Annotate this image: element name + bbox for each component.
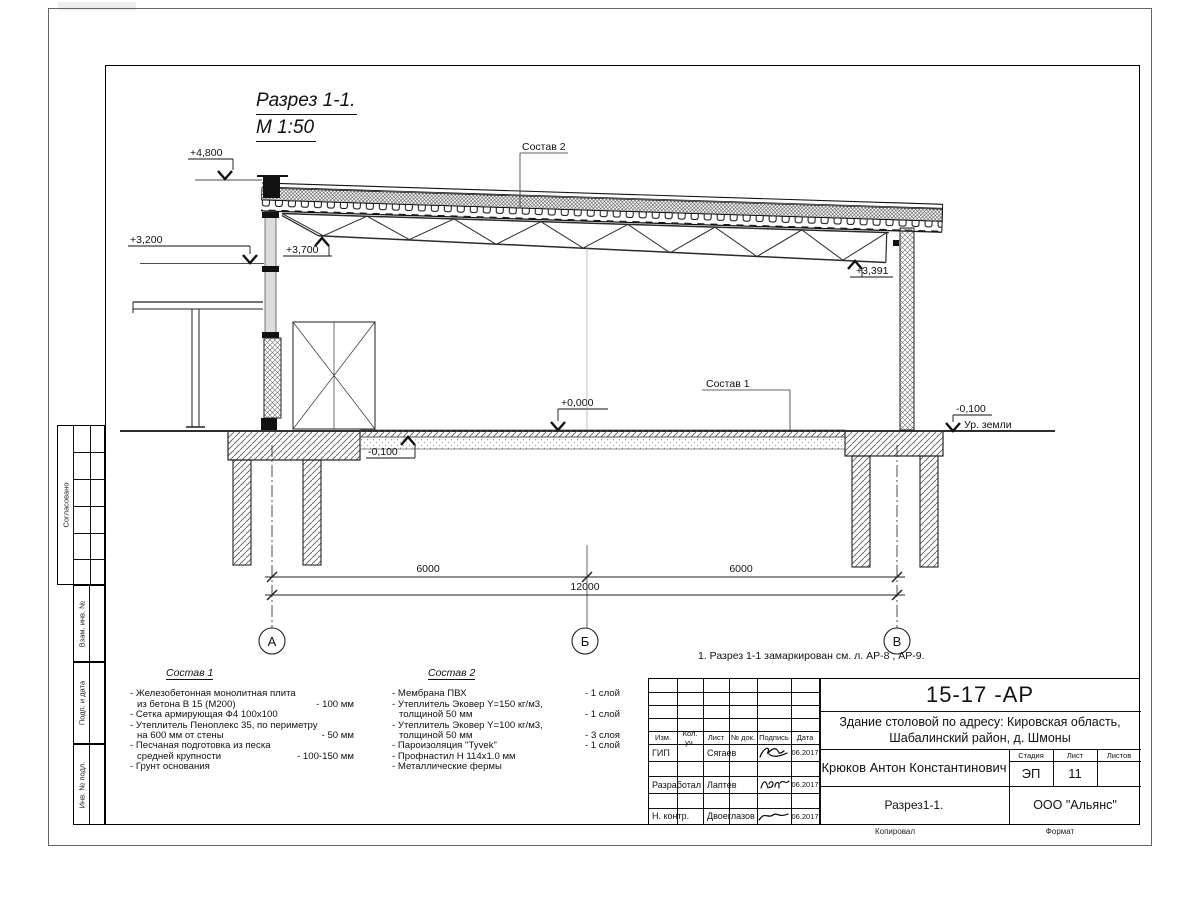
roof-assembly <box>260 181 945 264</box>
stamp-inv-podl: Инв. № подл. <box>73 744 105 825</box>
col-list: Лист <box>703 731 729 744</box>
company-name: ООО "Альянс" <box>1009 786 1141 824</box>
project-title: Здание столовой по адресу: Кировская обл… <box>819 711 1141 749</box>
dim-6000-right: 6000 <box>729 563 753 575</box>
view-title-text: Разрез 1-1. <box>256 88 357 115</box>
leader-sostav1 <box>702 390 790 431</box>
sostav1-title: Состав 1 <box>166 668 213 680</box>
floor-slab <box>360 430 845 449</box>
row-gip-role: ГИП <box>649 744 703 761</box>
elevation-3700-label: +3,700 <box>286 244 319 256</box>
stage-label: Стадия <box>1009 749 1053 761</box>
dim-12000: 12000 <box>570 581 599 593</box>
col-data: Дата <box>791 731 819 744</box>
drawing-note: 1. Разрез 1-1 замаркирован см. л. АР-8 ,… <box>698 650 924 662</box>
stamp-soglasovano-label: Согласовано <box>61 482 70 527</box>
kopiroval-label: Копировал <box>820 827 970 836</box>
spec-list-sostav2: Состав 2 - Мембрана ПВХ- 1 слой - Утепли… <box>392 668 620 773</box>
axis-label-a: А <box>268 634 277 649</box>
stamp-inv-podl-label: Инв. № подл. <box>77 761 86 808</box>
spec-list-sostav1: Состав 1 - Железобетонная монолитная пли… <box>130 668 354 773</box>
elevation-4800-label: +4,800 <box>190 147 223 159</box>
elevation-m100-floor-label: -0,100 <box>368 446 398 458</box>
col-ndok: № док. <box>729 731 757 744</box>
elevation-0000-label: +0,000 <box>561 397 594 409</box>
view-title: Разрез 1-1. М 1:50 <box>256 88 357 142</box>
row-gip-name: Сягаев <box>704 744 757 761</box>
format-label: Формат <box>1010 827 1110 836</box>
signature-gip <box>757 744 791 761</box>
spec-line: - Металлические фермы <box>392 762 620 772</box>
document-code: 15-17 -АР <box>819 679 1141 711</box>
view-scale-text: М 1:50 <box>256 115 316 142</box>
col-kol-uch: Кол. уч. <box>677 731 703 744</box>
row-razrabotal-role: Разработал <box>649 776 703 793</box>
row-nkontr-date: 06.2017 <box>791 808 819 824</box>
axis-label-b: Б <box>581 634 590 649</box>
title-block: Изм. Кол. уч. Лист № док. Подпись Дата Г… <box>648 678 1140 825</box>
elevation-m100-ground-label: -0,100 <box>956 403 986 415</box>
stamp-vzam-inv-label: Взам. инв. № <box>77 600 86 646</box>
elevation-3200-label: +3,200 <box>130 234 163 246</box>
stage-value: ЭП <box>1009 761 1053 786</box>
signature-nkontr <box>757 808 791 824</box>
row-gip-date: 06.2017 <box>791 744 819 761</box>
stamp-podp-data: Подп. и дата <box>73 662 105 744</box>
elevation-4800 <box>188 159 262 180</box>
sheets-value <box>1097 761 1141 786</box>
sheet-value: 11 <box>1053 761 1097 786</box>
ground-level-label: Ур. земли <box>964 419 1012 431</box>
signature-razrabotal <box>757 776 791 793</box>
row-razrabotal-date: 06.2017 <box>791 776 819 793</box>
porch-canopy <box>133 302 263 427</box>
dimensions <box>265 445 905 628</box>
drawing-sheet: +4,800 +3,200 +3,700 +3,391 +0,000 -0,10… <box>0 0 1200 900</box>
row-razrabotal-name: Лаптев <box>704 776 757 793</box>
elevation-3200 <box>128 246 264 264</box>
leader-sostav2-label: Состав 2 <box>522 141 566 153</box>
elevation-0000 <box>551 409 608 430</box>
stamp-vzam-inv: Взам. инв. № <box>73 585 105 662</box>
door <box>293 322 375 429</box>
sheet-label: Лист <box>1053 749 1097 761</box>
sheets-label: Листов <box>1097 749 1141 761</box>
row-nkontr-name: Двоеглазов <box>704 808 757 824</box>
person-name: Крюков Антон Константинович <box>819 749 1009 786</box>
foundation-right <box>845 431 943 567</box>
window-strip <box>265 212 276 338</box>
elevation-3391-label: +3,391 <box>856 265 889 277</box>
stamp-podp-data-label: Подп. и дата <box>77 681 86 725</box>
axis-label-v: В <box>893 634 902 649</box>
dim-6000-left: 6000 <box>416 563 440 575</box>
stamp-soglasovano: Согласовано <box>57 425 105 585</box>
wall-right <box>893 228 914 430</box>
row-nkontr-role: Н. контр. <box>649 808 703 824</box>
leader-sostav1-label: Состав 1 <box>706 378 750 390</box>
porch-column <box>192 309 199 427</box>
col-izm: Изм. <box>649 731 677 744</box>
col-podpis: Подпись <box>757 731 791 744</box>
drawing-name: Разрез1-1. <box>819 786 1009 824</box>
foundation-left <box>228 431 360 565</box>
spec-line: - Грунт основания <box>130 762 354 772</box>
sostav2-title: Состав 2 <box>428 668 475 680</box>
